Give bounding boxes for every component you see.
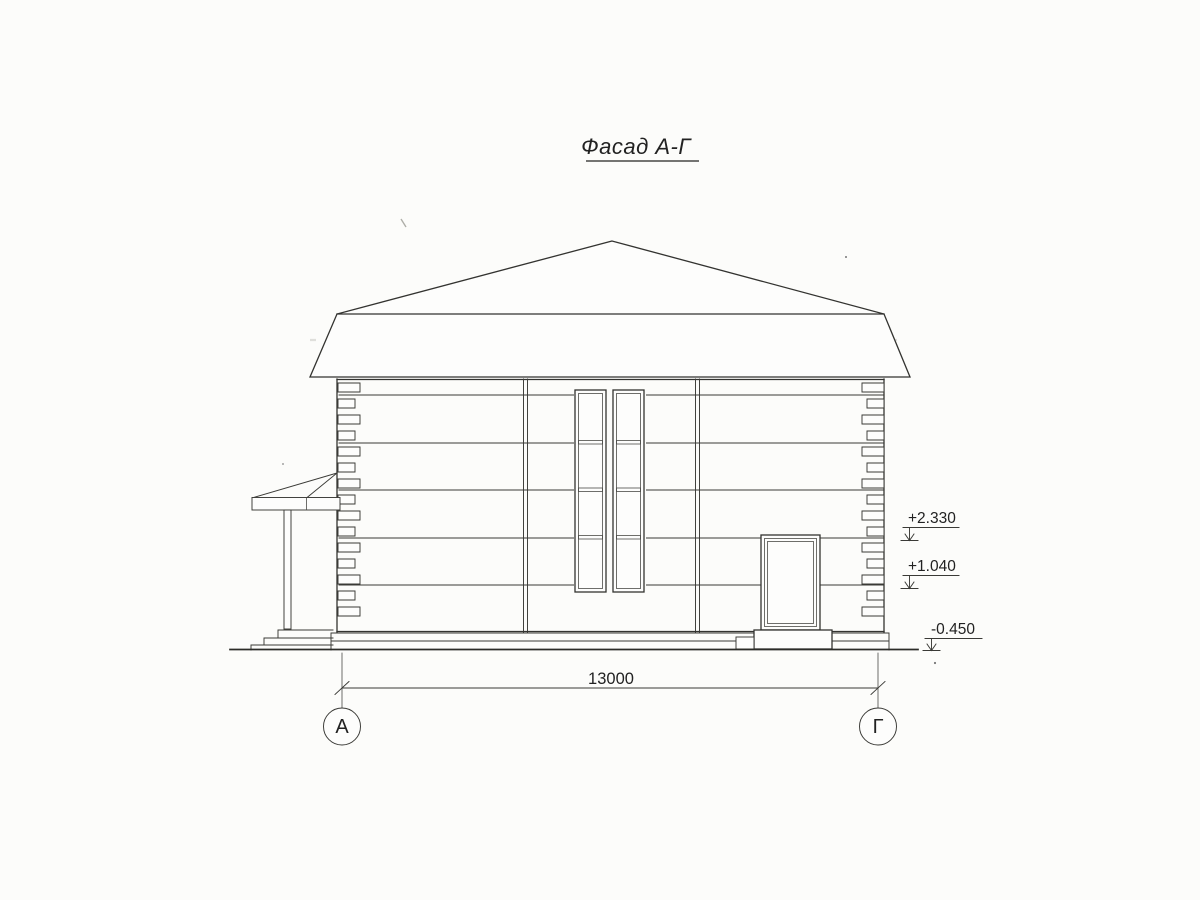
- log-ends-left: [338, 383, 360, 616]
- window-outer-frame: [575, 390, 606, 592]
- windows: [574, 389, 646, 593]
- window-left: [575, 390, 606, 592]
- window-outer-frame: [613, 390, 644, 592]
- stoop-slab: [754, 630, 832, 649]
- canopy-slope-lines: [252, 473, 337, 498]
- log-ends-right: [862, 383, 884, 616]
- axis-marker-g: Г: [860, 708, 897, 745]
- dimension-overall: 13000: [335, 653, 885, 708]
- canopy-fascia: [252, 498, 340, 511]
- scan-speck: [401, 219, 406, 227]
- drawing-title: Фасад А-Г: [581, 134, 699, 161]
- dimension-value: 13000: [588, 670, 634, 688]
- elevation-mark-middle: +1.040: [901, 558, 959, 589]
- scan-speck: [282, 463, 284, 465]
- elevation-value-upper: +2.330: [908, 510, 956, 527]
- scan-speck: [845, 256, 847, 258]
- window-right: [613, 390, 644, 592]
- scan-speck: [934, 662, 936, 664]
- wall-joint-right: [696, 379, 700, 632]
- elevation-mark-lower: -0.450: [923, 621, 982, 651]
- entrance-door: [761, 535, 820, 630]
- axis-label-a: А: [335, 716, 349, 738]
- elevation-value-middle: +1.040: [908, 558, 956, 575]
- hip-roof: [310, 241, 910, 377]
- door-outer-frame: [761, 535, 820, 630]
- porch-post: [284, 510, 291, 629]
- facade-elevation-drawing: 13000 А Г +2.330 +1.040 -0.450 Фасад А-Г: [0, 0, 1200, 900]
- porch-canopy: [252, 473, 340, 629]
- axis-marker-a: А: [324, 708, 361, 745]
- scanned-drawing-sheet: 13000 А Г +2.330 +1.040 -0.450 Фасад А-Г: [0, 0, 1200, 900]
- title-text: Фасад А-Г: [581, 134, 692, 159]
- elevation-value-lower: -0.450: [931, 621, 975, 638]
- axis-label-g: Г: [873, 716, 884, 738]
- steps-profile: [251, 630, 333, 650]
- porch-steps: [251, 630, 333, 650]
- roof-outline: [310, 241, 910, 377]
- wall-joint-left: [524, 379, 528, 632]
- elevation-mark-upper: +2.330: [901, 510, 959, 541]
- stoop-step: [736, 637, 754, 649]
